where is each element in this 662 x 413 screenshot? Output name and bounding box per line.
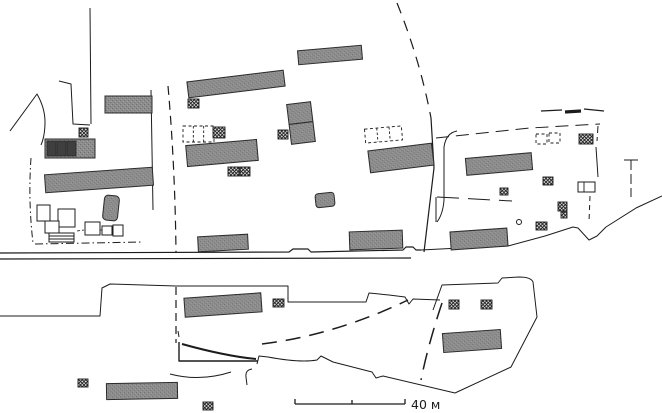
connector-dash: [77, 230, 84, 231]
feature-marker: [79, 128, 88, 137]
fence-line: [596, 147, 598, 177]
building: [184, 293, 262, 317]
open-structure: [578, 182, 595, 192]
building: [187, 70, 285, 98]
feature-marker: [561, 212, 567, 218]
site-plan-svg: 40 м: [0, 0, 662, 413]
track-dashed: [421, 303, 442, 380]
dashed-structure: [364, 126, 402, 143]
open-structure: [85, 222, 100, 235]
feature-marker: [188, 99, 199, 108]
feature-marker: [536, 222, 547, 230]
building: [45, 167, 154, 192]
lane-boundary: [437, 131, 457, 222]
building-cell: [67, 141, 76, 156]
feature-marker: [449, 300, 459, 309]
plot-divider-dashed: [168, 86, 176, 252]
building: [298, 45, 363, 65]
feature-marker: [500, 188, 508, 195]
scale-bar: 40 м: [295, 397, 440, 412]
feature-marker: [481, 300, 492, 309]
building: [105, 96, 152, 113]
feature-marker: [203, 402, 213, 410]
open-structure: [113, 225, 123, 236]
field-dash: [541, 110, 562, 111]
field-dash-thick: [565, 111, 581, 112]
feature-marker: [213, 127, 225, 138]
building: [442, 330, 501, 353]
feature-marker: [278, 130, 288, 139]
building: [186, 139, 259, 166]
map-layers: [0, 3, 662, 410]
dashed-structure: [183, 126, 214, 142]
building: [106, 382, 177, 399]
enclosure-wall: [59, 81, 90, 125]
north-boundary-dashed: [597, 126, 598, 141]
road-lower-line: [0, 258, 411, 259]
dashed-structure: [549, 133, 560, 143]
dashed-structure-divider: [389, 127, 390, 141]
circle-feature: [517, 220, 522, 225]
east-plot-boundary-dashed: [397, 3, 431, 118]
building: [198, 234, 249, 252]
building: [102, 195, 120, 221]
open-structure: [102, 226, 112, 235]
fence-dashed: [437, 197, 512, 201]
enclosure-wall: [90, 8, 91, 124]
path-curve: [246, 369, 252, 385]
building-cell: [57, 141, 66, 156]
feature-marker: [579, 134, 593, 144]
feature-marker: [543, 177, 553, 185]
open-structure: [49, 233, 74, 242]
scale-bar-line: [295, 399, 405, 404]
open-structure: [45, 221, 59, 233]
site-plan: 40 м: [0, 0, 662, 413]
field-dash: [584, 109, 604, 111]
building: [450, 228, 508, 250]
east-plot-boundary: [424, 118, 434, 252]
building: [315, 192, 335, 208]
ramp-structure: [182, 344, 256, 359]
building-cell: [47, 141, 56, 156]
west-boundary: [10, 94, 45, 145]
feature-marker: [228, 167, 239, 176]
feature-marker: [273, 299, 284, 307]
north-boundary-dashed: [436, 124, 600, 138]
ramp-structure: [178, 331, 179, 337]
west-boundary-dashed: [30, 158, 33, 243]
scale-label: 40 м: [411, 397, 440, 412]
feature-marker: [558, 202, 567, 211]
building: [349, 230, 403, 250]
dashed-structure: [536, 134, 547, 144]
open-structure: [58, 209, 75, 227]
fence-dashed: [589, 196, 590, 222]
feature-marker: [78, 379, 88, 387]
open-structure: [37, 205, 50, 221]
building: [368, 143, 434, 173]
path-curve: [170, 372, 231, 378]
building: [465, 153, 532, 176]
feature-marker: [240, 167, 250, 176]
dashed-structure-divider: [377, 128, 378, 142]
